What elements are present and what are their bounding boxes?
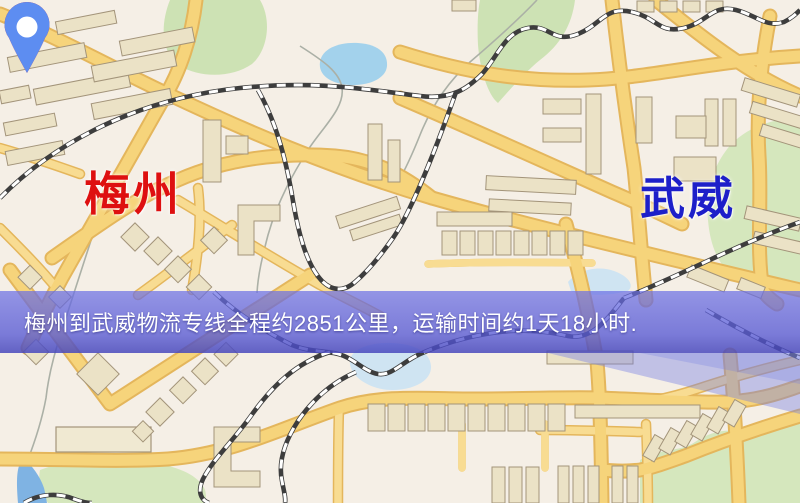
origin-city-label: 梅州 bbox=[84, 172, 182, 218]
map-screenshot: 梅州到武威物流专线全程约2851公里，运输时间约1天18小时. 梅州 武威 bbox=[0, 0, 800, 503]
map-canvas bbox=[0, 0, 800, 503]
destination-pin-icon[interactable] bbox=[0, 0, 54, 76]
route-info-text: 梅州到武威物流专线全程约2851公里，运输时间约1天18小时. bbox=[24, 306, 637, 338]
route-info-banner: 梅州到武威物流专线全程约2851公里，运输时间约1天18小时. bbox=[0, 291, 800, 353]
destination-city-label: 武威 bbox=[640, 177, 736, 222]
